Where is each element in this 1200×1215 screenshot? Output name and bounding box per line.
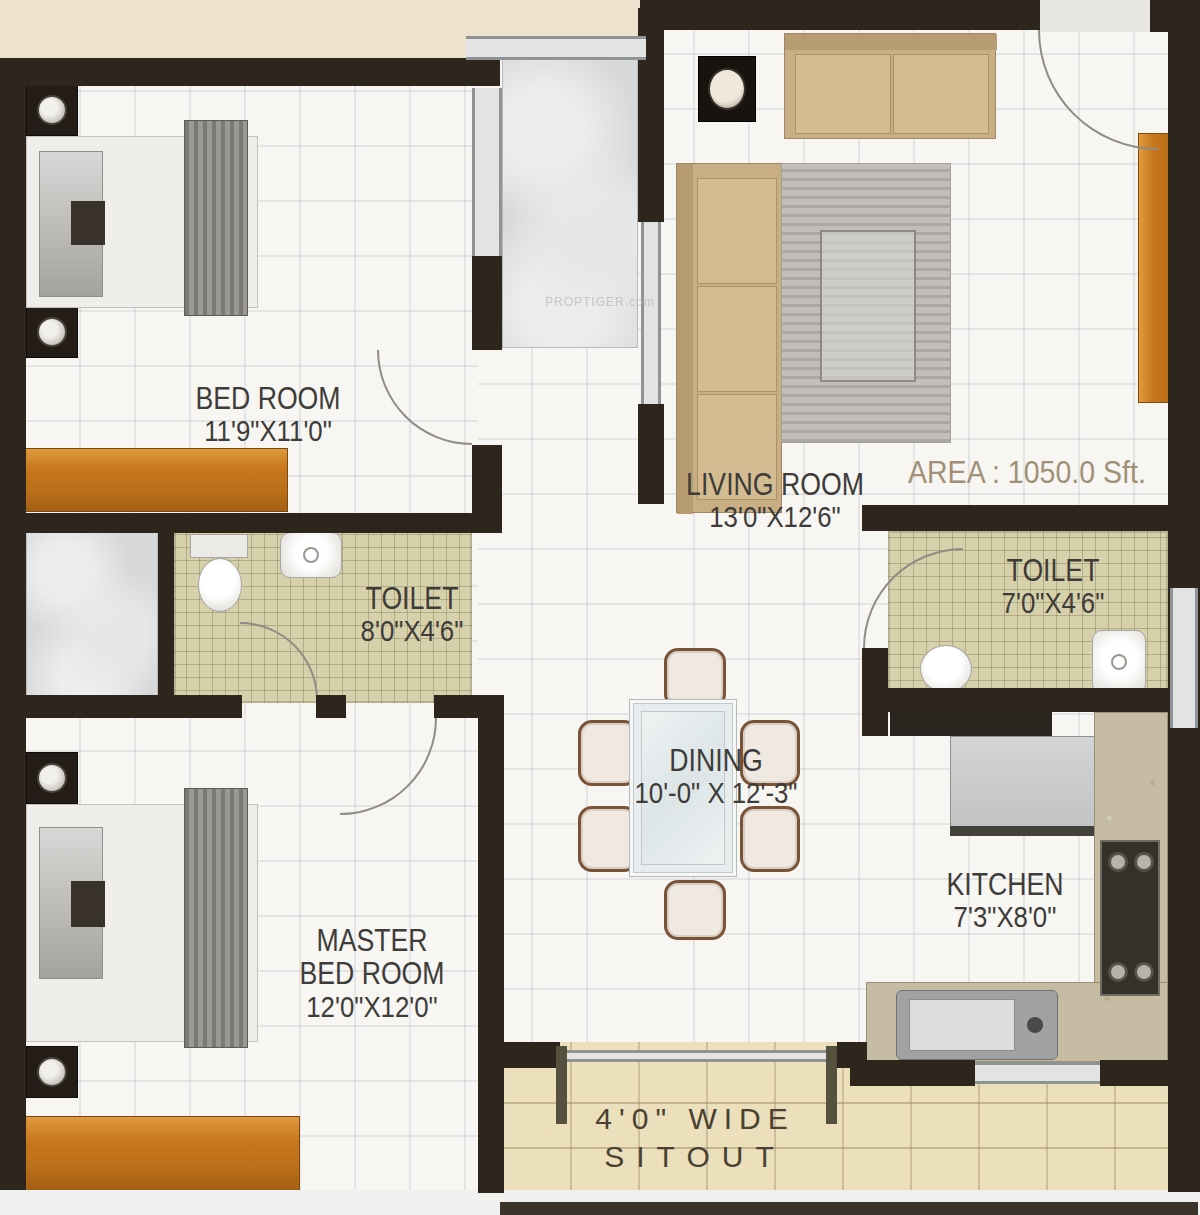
master-bed-runner bbox=[184, 788, 248, 1048]
room-name: MASTER bbox=[269, 924, 475, 957]
basin-drain-icon bbox=[303, 547, 319, 563]
burner-icon bbox=[1134, 962, 1154, 982]
room-dims: 10'-0" X 12'-3" bbox=[608, 777, 825, 809]
bed-accent bbox=[71, 201, 105, 245]
room-dims: 11'9"X11'0" bbox=[165, 415, 371, 447]
foyer-top-window bbox=[466, 36, 646, 60]
kitchen-left-wall-stub bbox=[862, 688, 888, 736]
burner-icon bbox=[1108, 852, 1128, 872]
room-name: DINING bbox=[608, 744, 825, 777]
dining-chair-bottom bbox=[664, 880, 726, 940]
sitout-line2: SITOUT bbox=[575, 1138, 815, 1176]
toilet-right-window bbox=[1170, 588, 1198, 728]
toilet-right-wc bbox=[920, 645, 972, 693]
sofa-cushion bbox=[795, 54, 891, 134]
room-dims: 8'0"X4'6" bbox=[326, 615, 498, 647]
sofa-back bbox=[677, 164, 693, 514]
lamp-icon bbox=[37, 1057, 67, 1087]
toilet-left-label: TOILET 8'0"X4'6" bbox=[326, 582, 498, 648]
sofa-cushion bbox=[697, 178, 777, 284]
dining-chair-right-2 bbox=[740, 806, 800, 872]
bedroom-right-wall-stub bbox=[472, 445, 502, 513]
bedroom-dresser bbox=[16, 448, 288, 512]
toilet-right-top-wall bbox=[862, 505, 1168, 531]
bedroom-right-window bbox=[472, 88, 502, 256]
room-dims: 12'0"X12'0" bbox=[269, 991, 475, 1023]
kitchen-fridge bbox=[950, 736, 1100, 828]
sitout-label: 4'0" WIDE SITOUT bbox=[575, 1100, 815, 1175]
master-top-wall-c bbox=[434, 695, 504, 718]
burner-icon bbox=[1108, 962, 1128, 982]
utility-toilet-divider-wall bbox=[158, 525, 174, 703]
wall-left bbox=[0, 58, 26, 1190]
living-label: LIVING ROOM 13'0"X12'6" bbox=[663, 468, 887, 534]
foyer-right-wall-lower bbox=[638, 404, 664, 504]
room-name: LIVING ROOM bbox=[663, 468, 887, 501]
sitout-window-under-kitchen bbox=[975, 1062, 1100, 1084]
room-name: KITCHEN bbox=[919, 868, 1091, 901]
toilet-left-wc bbox=[198, 558, 242, 612]
master-nightstand-top bbox=[26, 752, 78, 804]
sitout-wall-under-kitchen-b bbox=[1100, 1060, 1168, 1086]
kitchen-label: KITCHEN 7'3"X8'0" bbox=[919, 868, 1091, 934]
toilet-right-washbasin bbox=[1092, 630, 1146, 694]
sitout-door-post-right bbox=[826, 1046, 837, 1124]
main-sofa bbox=[676, 163, 782, 513]
room-dims: 7'0"X4'6" bbox=[967, 587, 1139, 619]
rug-inner-border bbox=[820, 230, 916, 382]
wall-top-left bbox=[0, 58, 500, 86]
dining-label: DINING 10'-0" X 12'-3" bbox=[608, 744, 825, 810]
dining-chair-top bbox=[664, 648, 726, 708]
bedroom-label: BED ROOM 11'9"X11'0" bbox=[165, 382, 371, 448]
toilet-left-washbasin bbox=[280, 532, 342, 578]
sofa-cushion bbox=[697, 286, 777, 392]
foyer-right-window bbox=[641, 222, 661, 404]
kitchen-overhead-slab bbox=[890, 708, 1052, 736]
toilet-right-bottom-wall bbox=[862, 688, 1168, 712]
sitout-door-post-left bbox=[556, 1046, 567, 1124]
area-label: AREA : 1050.0 Sft. bbox=[908, 455, 1146, 491]
floor-plan: BED ROOM 11'9"X11'0" LIVING ROOM 13'0"X1… bbox=[0, 0, 1200, 1215]
master-right-wall bbox=[478, 718, 504, 1193]
kitchen-stove bbox=[1100, 840, 1160, 996]
kitchen-fridge-base bbox=[950, 826, 1100, 836]
bed-accent bbox=[71, 881, 105, 927]
sitout-wall-under-kitchen-a bbox=[850, 1060, 975, 1086]
bedroom-bed-runner bbox=[184, 120, 248, 316]
room-name: BED ROOM bbox=[165, 382, 371, 415]
master-label: MASTER BED ROOM 12'0"X12'0" bbox=[269, 924, 475, 1023]
sofa-cushion bbox=[893, 54, 989, 134]
bedroom-nightstand-bottom bbox=[26, 306, 78, 358]
utility-marble-area bbox=[26, 528, 158, 703]
faucet-icon bbox=[1027, 1017, 1043, 1033]
toilet-right-label: TOILET 7'0"X4'6" bbox=[967, 554, 1139, 620]
watermark-text: PROPTIGER.com bbox=[545, 295, 655, 309]
living-room-rug bbox=[781, 163, 951, 443]
wall-top-living bbox=[640, 0, 1040, 30]
sitout-line1: 4'0" WIDE bbox=[575, 1100, 815, 1138]
lamp-icon bbox=[37, 317, 67, 347]
bottom-edge-strip bbox=[500, 1202, 1198, 1215]
dining-chair-left-2 bbox=[578, 806, 638, 872]
master-top-wall-b bbox=[316, 695, 346, 718]
bedroom-right-wall bbox=[472, 256, 502, 350]
basin-drain-icon bbox=[1111, 654, 1127, 670]
lamp-icon bbox=[37, 95, 67, 125]
clock-icon bbox=[708, 68, 746, 110]
sitout-sliding-door bbox=[567, 1050, 826, 1062]
room-name: BED ROOM bbox=[269, 957, 475, 990]
room-dims: 13'0"X12'6" bbox=[663, 501, 887, 533]
room-name: TOILET bbox=[967, 554, 1139, 587]
sitout-wall-left bbox=[478, 1042, 560, 1068]
master-nightstand-bottom bbox=[26, 1046, 78, 1098]
sink-basin bbox=[909, 999, 1015, 1051]
sofa-back bbox=[785, 34, 997, 50]
master-top-wall-a bbox=[26, 695, 242, 718]
tv-unit bbox=[698, 56, 756, 122]
kitchen-sink bbox=[896, 990, 1058, 1060]
bedroom-bottom-wall bbox=[26, 513, 502, 533]
room-dims: 7'3"X8'0" bbox=[919, 901, 1091, 933]
entrance-threshold bbox=[1040, 0, 1158, 32]
toilet-left-cistern bbox=[190, 534, 248, 558]
room-name: TOILET bbox=[326, 582, 498, 615]
lamp-icon bbox=[37, 763, 67, 793]
master-dresser bbox=[16, 1116, 300, 1192]
loveseat-sofa bbox=[784, 33, 996, 139]
bedroom-nightstand-top bbox=[26, 84, 78, 136]
burner-icon bbox=[1134, 852, 1154, 872]
